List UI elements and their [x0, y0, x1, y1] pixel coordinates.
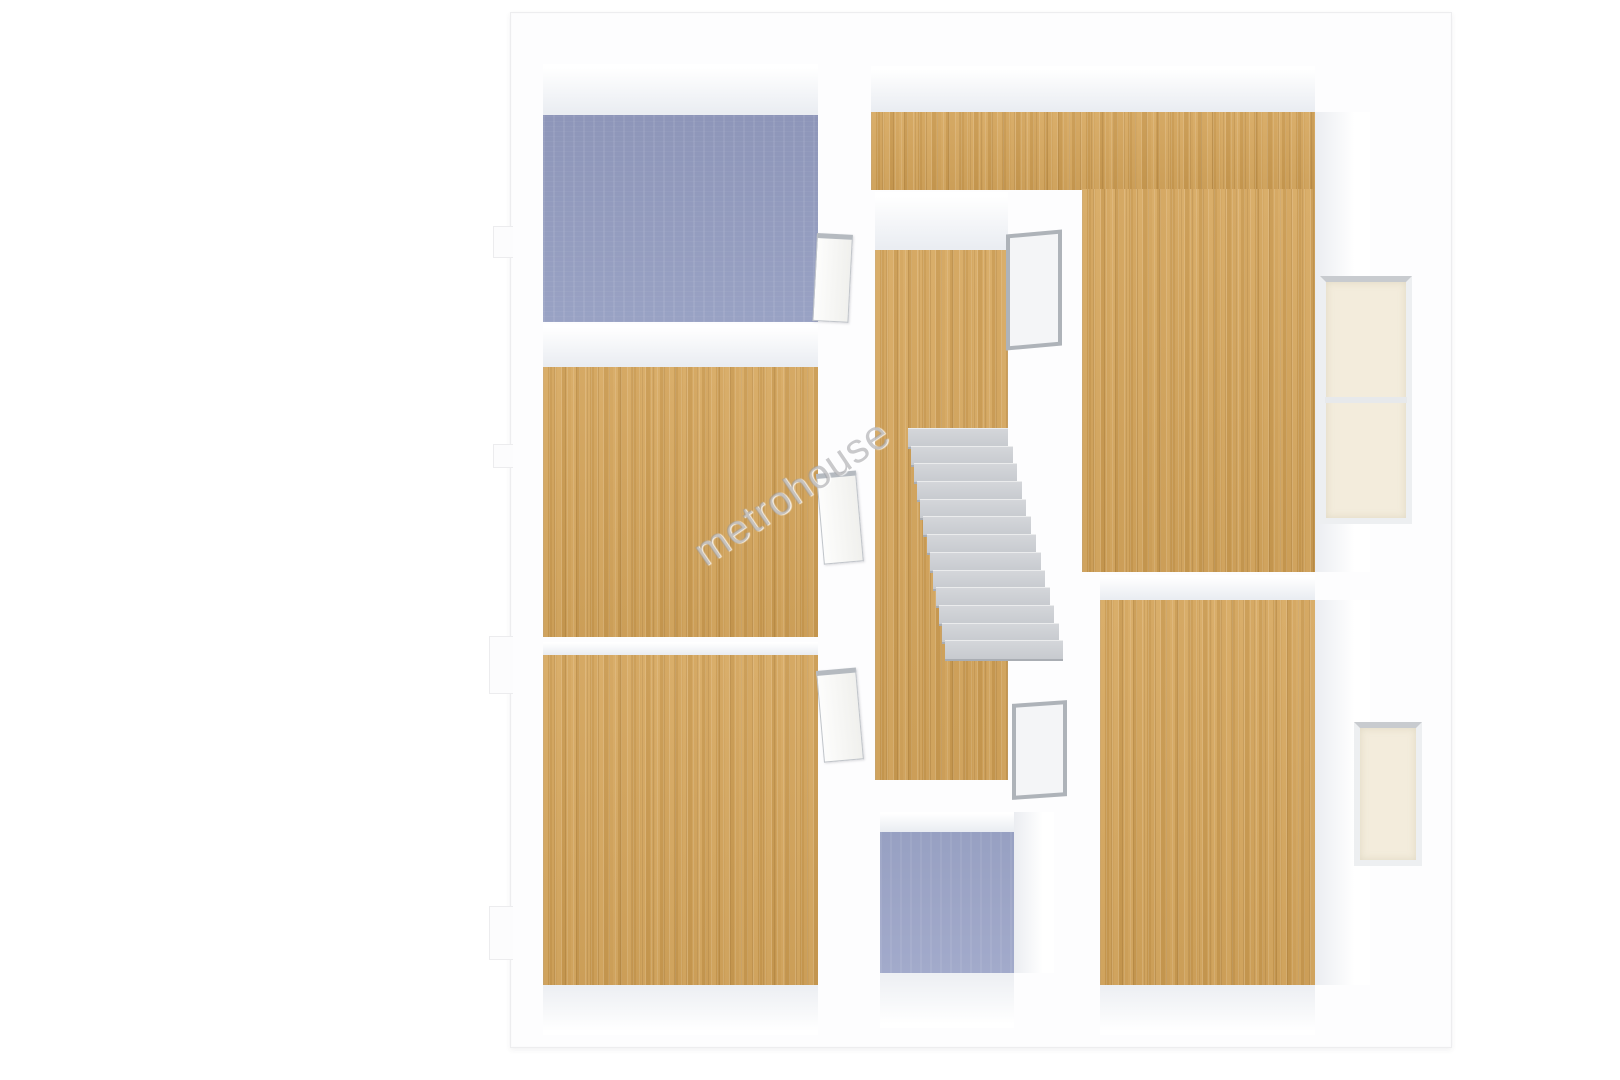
door-room-mid-left	[816, 471, 864, 565]
staircase-step	[908, 428, 1008, 447]
floor-room-right-lower	[1100, 600, 1315, 985]
wall-face-under-room-bottom-left	[543, 985, 818, 1035]
floorplan-render	[0, 0, 1620, 1080]
wall-face-stairwell-top	[875, 192, 1008, 250]
floor-room-right-upper	[1082, 189, 1315, 572]
wall-face-bathroom-top	[880, 812, 1014, 832]
wall-face-hallway-top	[871, 66, 1315, 112]
staircase-step	[930, 552, 1041, 571]
wall-face-room-top-left	[543, 64, 818, 115]
wall-face-room-mid-left	[543, 324, 818, 367]
window-right-lower	[1354, 722, 1422, 866]
left-wall-pilaster-4	[489, 906, 513, 960]
stairwell-opening-lower	[1012, 700, 1067, 800]
floor-room-top-left	[543, 115, 818, 322]
floor-bathroom	[880, 832, 1014, 973]
door-room-bottom-left	[816, 668, 864, 763]
left-wall-pilaster-3	[489, 636, 513, 694]
wall-face-room-right-lower-top	[1100, 575, 1315, 600]
staircase-step	[923, 516, 1031, 535]
wall-face-room-bottom-left	[543, 642, 818, 655]
staircase-step	[939, 605, 1054, 624]
door-room-top-left	[812, 233, 853, 323]
staircase-step	[945, 640, 1063, 659]
window-right-upper	[1320, 276, 1412, 524]
window-right-upper-divider	[1325, 397, 1407, 403]
wall-face-bathroom-side	[1014, 812, 1054, 973]
wall-face-under-room-right-lower	[1100, 985, 1315, 1035]
left-wall-pilaster-1	[493, 226, 513, 258]
staircase-step	[927, 534, 1036, 553]
wall-face-under-bathroom	[880, 973, 1014, 1028]
floor-hallway-top	[871, 112, 1315, 190]
staircase-step	[914, 463, 1017, 482]
stairwell-opening-upper	[1006, 230, 1062, 351]
staircase-step	[917, 481, 1022, 500]
floor-room-mid-left	[543, 367, 818, 637]
left-wall-pilaster-2	[493, 444, 513, 468]
floor-room-bottom-left	[543, 655, 818, 985]
staircase-step	[936, 587, 1050, 606]
